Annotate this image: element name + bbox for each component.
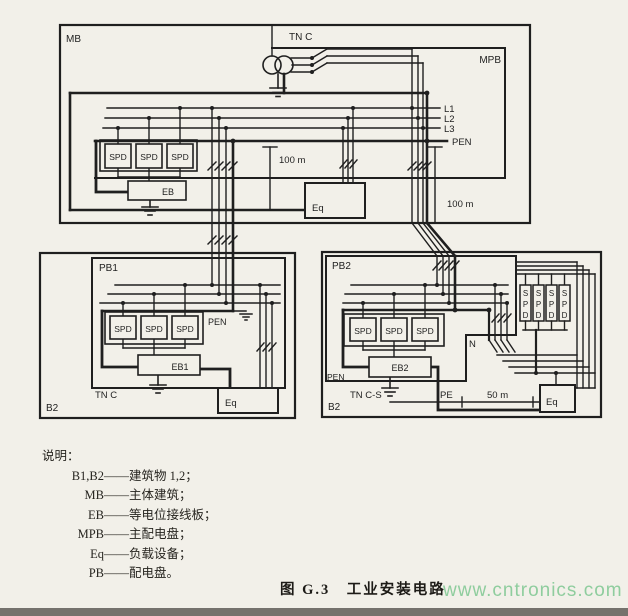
- eb-ground-icon: [142, 200, 158, 215]
- mpb-label: MPB: [479, 55, 501, 66]
- spd-label: SPD: [385, 326, 402, 336]
- eb1-eq-bond: [200, 369, 230, 388]
- legend-desc: 建筑物 1,2；: [129, 467, 198, 487]
- legend-item: EB——等电位接线板；: [42, 506, 217, 526]
- svg-text:S: S: [536, 289, 541, 298]
- pb1-eq-feeders: [257, 285, 276, 388]
- eq-label-top: Eq: [312, 203, 324, 214]
- distance-marker-right: [428, 147, 442, 223]
- dist-50m-label: 50 m: [487, 390, 508, 401]
- legend-desc: 主体建筑；: [129, 486, 192, 506]
- legend-dash: ——: [104, 545, 129, 565]
- dist-left-label: 100 m: [279, 155, 305, 166]
- spd-label: SPD: [354, 326, 371, 336]
- legend-item: MPB——主配电盘；: [42, 525, 217, 545]
- feeder-bundle-right: [408, 49, 455, 256]
- eb-label: EB: [162, 187, 174, 197]
- spd-label: SPD: [176, 324, 193, 334]
- svg-text:P: P: [536, 300, 541, 309]
- eb2-ground-icon: [382, 377, 398, 396]
- figure-caption: 图 G.3 工业安装电路: [280, 578, 446, 599]
- main-switches: [291, 49, 423, 72]
- pb2-incoming: [433, 256, 459, 310]
- pen-ground-icon: [233, 311, 252, 320]
- legend-dash: ——: [104, 564, 129, 584]
- pe-label: PE: [440, 390, 453, 401]
- spd-label: SPD: [114, 324, 131, 334]
- svg-text:D: D: [523, 311, 529, 320]
- eb1-label: EB1: [171, 362, 188, 372]
- legend-item: MB——主体建筑；: [42, 486, 217, 506]
- svg-text:P: P: [549, 300, 554, 309]
- eq-label-left: Eq: [225, 398, 237, 409]
- svg-text:D: D: [549, 311, 555, 320]
- legend-dash: ——: [104, 525, 129, 545]
- pb1-label: PB1: [99, 263, 118, 274]
- legend-desc: 负载设备；: [129, 545, 192, 565]
- svg-text:S: S: [523, 289, 528, 298]
- spd-label: SPD: [145, 324, 162, 334]
- svg-text:D: D: [562, 311, 568, 320]
- pen-label-pb2: PEN: [327, 372, 344, 382]
- eb1-box: [138, 355, 200, 375]
- scan-edge-band: [0, 608, 628, 616]
- b2-left-label: B2: [46, 403, 59, 414]
- eb-box: [128, 181, 186, 200]
- legend: 说明： B1,B2——建筑物 1,2； MB——主体建筑； EB——等电位接线板…: [42, 447, 217, 584]
- scanned-diagram-page: MB TN C MPB L1 L2 L3 PEN SPD SPD SPD EB …: [0, 0, 628, 616]
- tnc-top-label: TN C: [289, 32, 312, 43]
- watermark: www.cntronics.com: [443, 580, 623, 602]
- svg-text:D: D: [536, 311, 542, 320]
- svg-text:S: S: [562, 289, 567, 298]
- circuit-diagram: MB TN C MPB L1 L2 L3 PEN SPD SPD SPD EB …: [0, 0, 628, 448]
- svg-text:P: P: [523, 300, 528, 309]
- pen-label-top: PEN: [452, 137, 472, 148]
- transformer-icon: [263, 56, 293, 74]
- n-label: N: [469, 339, 476, 350]
- tnc-left-label: TN C: [95, 390, 117, 401]
- tncs-label: TN C-S: [350, 390, 382, 401]
- right-risers: [517, 262, 595, 388]
- eq-label-right: Eq: [546, 397, 558, 408]
- busbars: [95, 108, 447, 141]
- mb-label: MB: [66, 34, 81, 45]
- eb1-ground-icon: [150, 375, 166, 393]
- spd-label: SPD: [416, 326, 433, 336]
- legend-desc: 主配电盘；: [129, 525, 192, 545]
- svg-text:S: S: [549, 289, 554, 298]
- legend-dash: ——: [104, 467, 129, 487]
- l3-label: L3: [444, 124, 455, 135]
- spd-label: SPD: [140, 152, 157, 162]
- eb2-label: EB2: [391, 363, 408, 373]
- legend-desc: 等电位接线板；: [129, 506, 217, 526]
- legend-item: B1,B2——建筑物 1,2；: [42, 467, 217, 487]
- spd-label: SPD: [109, 152, 126, 162]
- pb1-busbars: [100, 285, 280, 311]
- legend-title: 说明：: [42, 447, 217, 467]
- building-left: [40, 253, 295, 418]
- spd-label: SPD: [171, 152, 188, 162]
- legend-item: PB——配电盘。: [42, 564, 217, 584]
- legend-dash: ——: [104, 506, 129, 526]
- b2-right-label: B2: [328, 402, 341, 413]
- dist-right-label: 100 m: [447, 199, 473, 210]
- legend-dash: ——: [104, 486, 129, 506]
- legend-desc: 配电盘。: [129, 564, 179, 584]
- pb2-label: PB2: [332, 261, 351, 272]
- pen-label-pb1: PEN: [208, 317, 227, 327]
- pe-run: [390, 397, 540, 407]
- legend-item: Eq——负载设备；: [42, 545, 217, 565]
- svg-text:P: P: [562, 300, 567, 309]
